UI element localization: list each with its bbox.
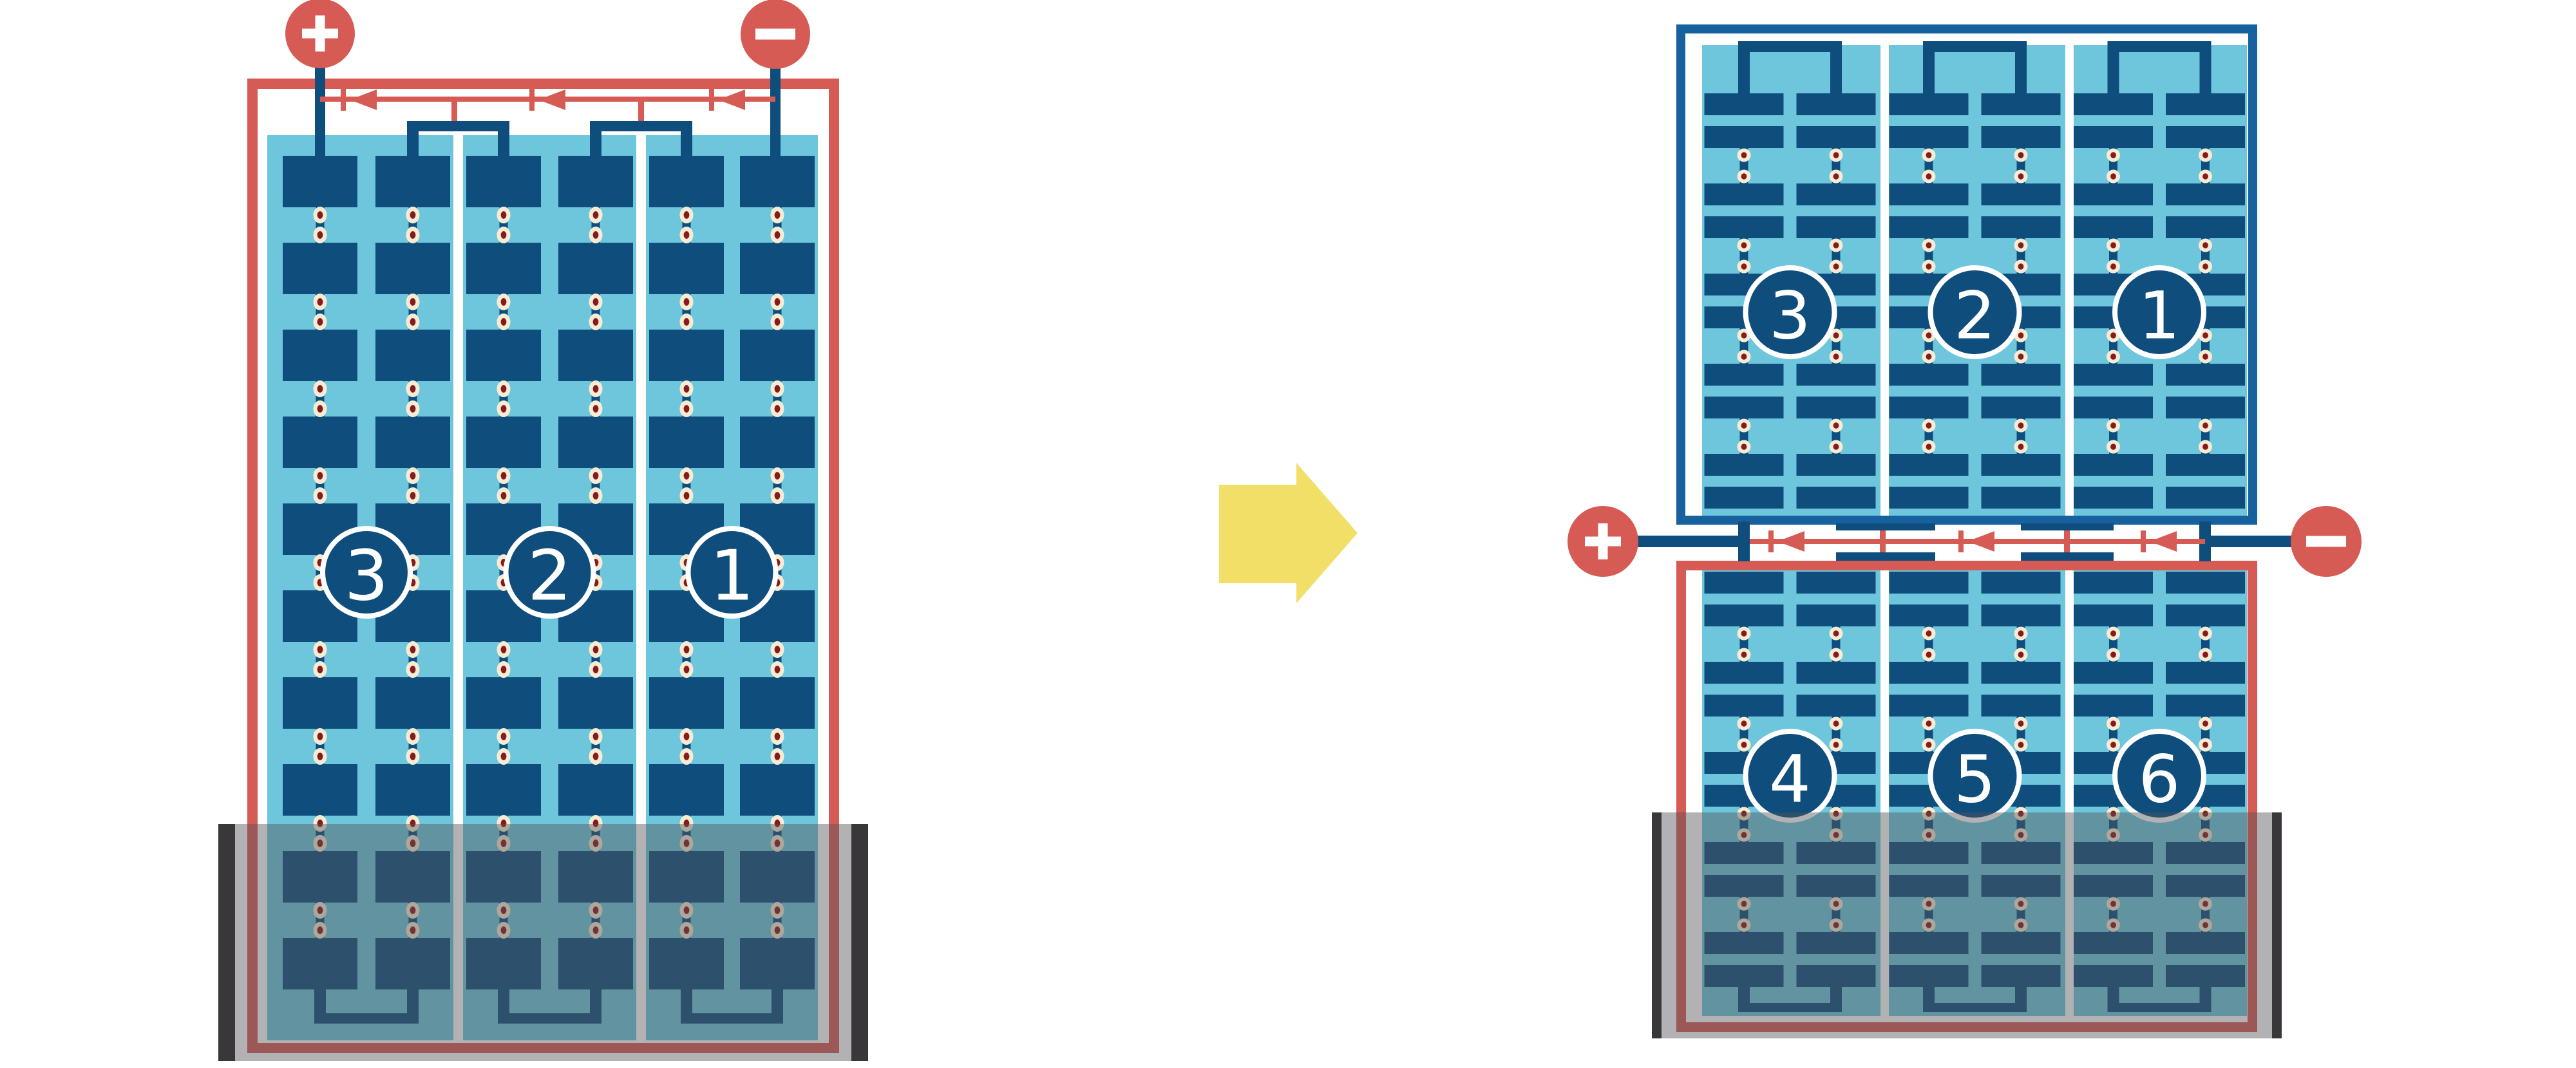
solder-dot-center xyxy=(2018,332,2024,338)
solar-cell xyxy=(1889,604,1969,626)
solar-cell xyxy=(558,677,633,729)
solar-cell xyxy=(2166,695,2245,717)
solder-dot-center xyxy=(2202,651,2208,657)
shadow-post xyxy=(2272,812,2282,1038)
string-number: 3 xyxy=(1769,278,1811,355)
solar-cell xyxy=(1982,216,2061,238)
bus-drop xyxy=(1880,530,1886,552)
solar-cell xyxy=(649,417,724,468)
solar-cell xyxy=(558,417,633,468)
interstring-link xyxy=(590,121,692,131)
solder-dot-center xyxy=(501,472,507,480)
solder-dot-center xyxy=(501,733,507,740)
solder-dot-center xyxy=(1833,444,1839,449)
solder-dot-center xyxy=(684,753,690,760)
solar-cell xyxy=(1797,695,1876,717)
solder-dot-center xyxy=(2018,720,2024,726)
string-number: 2 xyxy=(527,536,572,617)
solder-dot-center xyxy=(2110,242,2116,248)
solar-cell xyxy=(1797,572,1876,594)
solder-dot-center xyxy=(775,753,781,760)
solar-cell xyxy=(283,417,357,468)
link-tab-upper xyxy=(1836,523,1935,530)
junction-negative-terminal xyxy=(2291,506,2362,577)
solder-dot-center xyxy=(317,211,323,219)
solder-dot-center xyxy=(775,211,781,219)
solar-cell xyxy=(1889,454,1969,476)
solar-cell xyxy=(740,764,815,816)
solar-cell xyxy=(1889,695,1969,717)
negative-lead-bar xyxy=(770,64,781,162)
solder-dot-center xyxy=(2202,630,2208,636)
solder-dot-center xyxy=(684,666,690,673)
solder-dot-center xyxy=(593,733,599,740)
solar-cell xyxy=(2074,454,2153,476)
solar-cell xyxy=(375,243,450,294)
solder-dot-center xyxy=(501,231,507,239)
solar-cell xyxy=(740,156,815,207)
string-return-link xyxy=(2108,41,2211,52)
shadow-post xyxy=(218,824,235,1061)
solar-cell xyxy=(2166,604,2245,626)
solder-dot-center xyxy=(501,405,507,413)
solar-cell xyxy=(283,330,357,381)
solder-dot-center xyxy=(410,646,416,653)
solar-cell xyxy=(375,764,450,816)
string-return-link xyxy=(1923,41,2027,52)
solder-dot-center xyxy=(2202,422,2208,428)
solder-dot-center xyxy=(775,231,781,239)
solder-dot-center xyxy=(1741,742,1747,747)
solar-cell xyxy=(1797,662,1876,684)
solder-dot-center xyxy=(593,492,599,500)
solder-dot-center xyxy=(2110,152,2116,158)
solder-dot-center xyxy=(501,666,507,673)
solder-dot-center xyxy=(317,646,323,653)
solar-cell xyxy=(2166,487,2245,509)
solder-dot-center xyxy=(2018,651,2024,657)
solder-dot-center xyxy=(1926,630,1932,636)
negative-lead-bar xyxy=(2199,536,2291,547)
solder-dot-center xyxy=(501,753,507,760)
solder-dot-center xyxy=(2110,422,2116,428)
solar-cell xyxy=(1797,487,1876,509)
solar-cell xyxy=(466,764,541,816)
solder-dot-center xyxy=(2018,152,2024,158)
solar-cell xyxy=(375,330,450,381)
solder-dot-center xyxy=(2018,422,2024,428)
solar-cell xyxy=(283,156,357,207)
solder-dot-center xyxy=(2110,720,2116,726)
right-top-panel: 321 xyxy=(1681,29,2253,520)
solder-dot-center xyxy=(317,298,323,306)
solder-dot-center xyxy=(593,211,599,219)
solder-dot-center xyxy=(2110,651,2116,657)
solar-cell xyxy=(1797,183,1876,205)
string-number: 4 xyxy=(1769,742,1811,818)
solar-cell xyxy=(2166,662,2245,684)
string-separator xyxy=(1880,45,1889,516)
solder-dot-center xyxy=(1926,444,1932,449)
solar-cell xyxy=(2074,695,2153,717)
solar-cell xyxy=(740,243,815,294)
solder-dot-center xyxy=(410,472,416,480)
solder-dot-center xyxy=(1926,720,1932,726)
solar-cell xyxy=(283,764,357,816)
link-tab-lower xyxy=(1836,552,1935,561)
solar-cell xyxy=(2166,216,2245,238)
solar-cell xyxy=(1982,487,2061,509)
solar-cell xyxy=(2074,216,2153,238)
solar-cell xyxy=(1889,572,1969,594)
string-return-leg xyxy=(1738,52,1750,100)
solder-dot-center xyxy=(1926,332,1932,338)
solar-cell xyxy=(649,677,724,729)
solder-dot-center xyxy=(1926,173,1932,179)
solder-dot-center xyxy=(1833,630,1839,636)
solar-cell xyxy=(1889,216,1969,238)
solar-cell xyxy=(1982,454,2061,476)
solar-cell xyxy=(649,243,724,294)
solder-dot-center xyxy=(593,646,599,653)
solar-cell xyxy=(649,156,724,207)
transition-arrow-icon xyxy=(1219,463,1358,603)
solar-cell xyxy=(2074,364,2153,386)
string-return-leg xyxy=(2108,52,2119,100)
solder-dot-center xyxy=(501,318,507,326)
solder-dot-center xyxy=(684,231,690,239)
solder-dot-center xyxy=(593,385,599,393)
solar-cell xyxy=(1982,662,2061,684)
solar-cell xyxy=(2074,183,2153,205)
positive-lead-bar xyxy=(1636,536,1750,547)
solar-cell xyxy=(1982,183,2061,205)
solar-cell xyxy=(1705,364,1784,386)
solder-dot-center xyxy=(1926,263,1932,269)
solder-dot-center xyxy=(317,231,323,239)
solar-cell xyxy=(558,330,633,381)
positive-lead-bar xyxy=(315,64,325,162)
solar-cell xyxy=(2166,397,2245,418)
solar-cell xyxy=(1797,126,1876,148)
solder-dot-center xyxy=(1833,353,1839,359)
solar-cell xyxy=(1705,126,1784,148)
solder-dot-center xyxy=(1741,651,1747,657)
solder-dot-center xyxy=(317,666,323,673)
bus-drop xyxy=(451,97,457,122)
interstring-link-leg xyxy=(498,131,509,162)
solder-dot-center xyxy=(1833,422,1839,428)
solar-cell xyxy=(1705,183,1784,205)
solar-cell xyxy=(375,677,450,729)
solder-dot-center xyxy=(2202,720,2208,726)
solder-dot-center xyxy=(1741,263,1747,269)
solar-cell xyxy=(1797,364,1876,386)
solar-cell xyxy=(2166,126,2245,148)
solder-dot-center xyxy=(2018,242,2024,248)
solder-dot-center xyxy=(1833,742,1839,747)
solder-dot-center xyxy=(775,733,781,740)
solar-cell xyxy=(1797,397,1876,418)
solder-dot-center xyxy=(1926,242,1932,248)
solar-cell xyxy=(1982,604,2061,626)
string-return-leg xyxy=(1830,52,1842,100)
minus-icon xyxy=(755,29,795,40)
solder-dot-center xyxy=(1741,720,1747,726)
solar-cell xyxy=(283,243,357,294)
solder-dot-center xyxy=(1833,720,1839,726)
solder-dot-center xyxy=(1741,630,1747,636)
solder-dot-center xyxy=(2018,263,2024,269)
solder-dot-center xyxy=(410,318,416,326)
solder-dot-center xyxy=(593,298,599,306)
shading-overlay xyxy=(218,824,868,1061)
solder-dot-center xyxy=(1833,242,1839,248)
solder-dot-center xyxy=(501,492,507,500)
solder-dot-center xyxy=(1833,152,1839,158)
solder-dot-center xyxy=(501,211,507,219)
solder-dot-center xyxy=(2202,152,2208,158)
solder-dot-center xyxy=(2202,173,2208,179)
solar-cell xyxy=(466,417,541,468)
solar-cell xyxy=(1705,454,1784,476)
solar-cell xyxy=(1982,572,2061,594)
solder-dot-center xyxy=(1741,173,1747,179)
solar-cell xyxy=(740,417,815,468)
solder-dot-center xyxy=(317,385,323,393)
solder-dot-center xyxy=(775,492,781,500)
solder-dot-center xyxy=(410,211,416,219)
interstring-link-leg xyxy=(407,131,419,162)
shading-overlay xyxy=(1652,812,2282,1038)
solar-cell xyxy=(1705,662,1784,684)
solar-cell xyxy=(466,330,541,381)
solder-dot-center xyxy=(684,733,690,740)
solder-dot-center xyxy=(1926,422,1932,428)
solder-dot-center xyxy=(317,733,323,740)
solar-cell xyxy=(1982,397,2061,418)
solder-dot-center xyxy=(501,385,507,393)
string-number: 6 xyxy=(2139,742,2181,818)
solder-dot-center xyxy=(1741,152,1747,158)
left-negative-terminal xyxy=(741,0,810,69)
solder-dot-center xyxy=(317,318,323,326)
solder-dot-center xyxy=(410,385,416,393)
solder-dot-center xyxy=(2202,742,2208,747)
string-return-leg xyxy=(2015,52,2027,100)
solder-dot-center xyxy=(593,231,599,239)
solder-dot-center xyxy=(2110,332,2116,338)
solar-cell xyxy=(375,156,450,207)
solar-cell xyxy=(1889,126,1969,148)
solder-dot-center xyxy=(1833,332,1839,338)
solder-dot-center xyxy=(317,472,323,480)
solar-cell xyxy=(2074,487,2153,509)
left-panel: 321 xyxy=(218,0,868,1061)
solder-dot-center xyxy=(775,385,781,393)
solder-dot-center xyxy=(1833,263,1839,269)
solar-cell xyxy=(283,677,357,729)
solder-dot-center xyxy=(1741,353,1747,359)
solar-cell xyxy=(740,677,815,729)
solder-dot-center xyxy=(501,646,507,653)
solar-cell xyxy=(1889,183,1969,205)
solder-dot-center xyxy=(684,492,690,500)
solder-dot-center xyxy=(593,666,599,673)
solder-dot-center xyxy=(2202,353,2208,359)
solder-dot-center xyxy=(593,753,599,760)
solder-dot-center xyxy=(593,318,599,326)
solder-dot-center xyxy=(1926,651,1932,657)
link-tab-lower xyxy=(2021,552,2114,561)
solder-dot-center xyxy=(410,298,416,306)
string-return-link xyxy=(1738,41,1842,52)
link-tab-upper xyxy=(2021,523,2114,530)
solder-dot-center xyxy=(2018,630,2024,636)
wiring-diagram: 321 xyxy=(0,0,2576,1068)
solder-dot-center xyxy=(2018,742,2024,747)
solar-cell xyxy=(2074,126,2153,148)
solder-dot-center xyxy=(1926,742,1932,747)
solder-dot-center xyxy=(410,405,416,413)
solder-dot-center xyxy=(2202,242,2208,248)
solder-dot-center xyxy=(1833,173,1839,179)
solder-dot-center xyxy=(593,472,599,480)
string-return-leg xyxy=(1923,52,1935,100)
solder-dot-center xyxy=(410,733,416,740)
solder-dot-center xyxy=(2110,742,2116,747)
solder-dot-center xyxy=(410,753,416,760)
solar-cell xyxy=(1705,572,1784,594)
shadow-post xyxy=(1652,812,1662,1038)
solder-dot-center xyxy=(1833,651,1839,657)
solar-cell xyxy=(1705,695,1784,717)
solder-dot-center xyxy=(775,405,781,413)
solder-dot-center xyxy=(2110,630,2116,636)
solder-dot-center xyxy=(1926,353,1932,359)
solder-dot-center xyxy=(775,472,781,480)
solder-dot-center xyxy=(593,405,599,413)
solar-cell xyxy=(1797,216,1876,238)
solder-dot-center xyxy=(1741,422,1747,428)
solder-dot-center xyxy=(410,666,416,673)
solar-cell xyxy=(558,243,633,294)
solar-cell xyxy=(2166,183,2245,205)
solar-cell xyxy=(2074,662,2153,684)
solder-dot-center xyxy=(2202,332,2208,338)
solder-dot-center xyxy=(410,231,416,239)
solder-dot-center xyxy=(684,211,690,219)
solder-dot-center xyxy=(317,405,323,413)
solder-dot-center xyxy=(684,646,690,653)
solar-cell xyxy=(1982,695,2061,717)
solder-dot-center xyxy=(2018,353,2024,359)
junction-positive-terminal xyxy=(1567,506,1638,577)
solder-dot-center xyxy=(775,318,781,326)
solar-cell xyxy=(1889,487,1969,509)
string-number: 2 xyxy=(1954,278,1996,355)
solder-dot-center xyxy=(410,492,416,500)
solder-dot-center xyxy=(2018,173,2024,179)
solar-cell xyxy=(1705,604,1784,626)
solar-cell xyxy=(2074,397,2153,418)
solder-dot-center xyxy=(2110,353,2116,359)
solar-cell xyxy=(466,156,541,207)
solar-cell xyxy=(1889,397,1969,418)
solder-dot-center xyxy=(501,298,507,306)
string-return-leg xyxy=(2200,52,2211,100)
solder-dot-center xyxy=(684,298,690,306)
solar-cell xyxy=(2074,572,2153,594)
interstring-link-leg xyxy=(681,131,692,162)
string-number: 3 xyxy=(345,536,389,617)
solar-cell xyxy=(1705,487,1784,509)
solder-dot-center xyxy=(775,298,781,306)
solder-dot-center xyxy=(775,646,781,653)
solar-cell xyxy=(1889,364,1969,386)
solar-cell xyxy=(558,764,633,816)
solar-cell xyxy=(1889,662,1969,684)
string-separator xyxy=(2065,45,2074,516)
solder-dot-center xyxy=(1926,152,1932,158)
solar-cell xyxy=(1797,454,1876,476)
solar-cell xyxy=(466,243,541,294)
string-number: 1 xyxy=(2139,278,2181,355)
interstring-link xyxy=(407,121,509,131)
solar-cell xyxy=(375,417,450,468)
solder-dot-center xyxy=(684,472,690,480)
solar-cell xyxy=(1982,364,2061,386)
solder-dot-center xyxy=(775,666,781,673)
solar-cell xyxy=(649,764,724,816)
solar-cell xyxy=(2166,572,2245,594)
left-positive-terminal xyxy=(285,0,355,68)
solder-dot-center xyxy=(2110,263,2116,269)
solder-dot-center xyxy=(1741,242,1747,248)
solar-cell xyxy=(1705,397,1784,418)
bus-drop xyxy=(638,97,644,122)
minus-icon xyxy=(2306,536,2346,547)
solar-cell xyxy=(1705,216,1784,238)
solder-dot-center xyxy=(684,405,690,413)
solder-dot-center xyxy=(317,753,323,760)
solar-cell xyxy=(2074,604,2153,626)
bus-drop xyxy=(2064,530,2070,552)
interstring-link-leg xyxy=(590,131,601,162)
solar-cell xyxy=(466,677,541,729)
solar-cell xyxy=(558,156,633,207)
solder-dot-center xyxy=(2110,173,2116,179)
solar-cell xyxy=(2166,364,2245,386)
solar-cell xyxy=(2166,454,2245,476)
solar-cell xyxy=(649,330,724,381)
solder-dot-center xyxy=(2110,444,2116,449)
solar-cell xyxy=(1982,126,2061,148)
solder-dot-center xyxy=(2202,263,2208,269)
shadow-post xyxy=(851,824,868,1061)
solder-dot-center xyxy=(684,318,690,326)
solder-dot-center xyxy=(317,492,323,500)
string-number: 5 xyxy=(1954,742,1996,818)
solder-dot-center xyxy=(2018,444,2024,449)
solder-dot-center xyxy=(1741,444,1747,449)
solder-dot-center xyxy=(2202,444,2208,449)
solar-cell xyxy=(740,330,815,381)
solar-cell xyxy=(1797,604,1876,626)
solder-dot-center xyxy=(1741,332,1747,338)
string-number: 1 xyxy=(710,536,754,617)
solder-dot-center xyxy=(684,385,690,393)
